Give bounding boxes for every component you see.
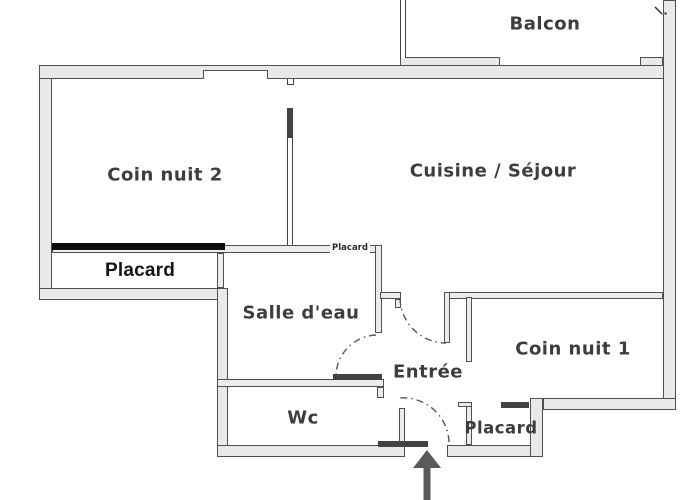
room-label-entree: Entrée xyxy=(393,362,463,383)
exterior-wall-top xyxy=(39,65,676,79)
coin-nuit-1-top-wall xyxy=(445,292,663,299)
placard-entree-door-bar xyxy=(501,402,529,408)
room-label-placard-mur: Placard xyxy=(330,243,370,253)
entrance-arrow-head xyxy=(413,450,441,468)
salle-deau-stub-step xyxy=(395,299,401,308)
divider-wall xyxy=(287,138,293,246)
salle-deau-door-bar xyxy=(333,374,382,380)
room-label-placard-nuit2: Placard xyxy=(105,260,175,282)
exterior-wall-bottom-coin1 xyxy=(543,398,676,410)
divider-wall-dark-end xyxy=(287,108,293,138)
room-label-coin-nuit-2: Coin nuit 2 xyxy=(107,165,223,186)
salle-deau-bottom-wall xyxy=(217,379,384,387)
room-label-coin-nuit-1: Coin nuit 1 xyxy=(515,339,631,360)
placard-entree-hook xyxy=(458,402,472,407)
balcony-parapet-right-segment xyxy=(640,57,663,66)
room-label-balcon: Balcon xyxy=(510,14,581,35)
wc-corner-step xyxy=(377,387,384,398)
floor-plan: Balcon Coin nuit 2 Cuisine / Séjour Plac… xyxy=(0,0,700,500)
exterior-wall-left xyxy=(39,65,52,300)
balcony-left-wall xyxy=(400,0,406,58)
exterior-wall-bottom-left xyxy=(39,288,226,300)
door-swing-arc-coin-nuit-1 xyxy=(400,298,446,343)
doorframe-notch xyxy=(287,79,294,85)
balcony-parapet-left-segment xyxy=(400,57,500,66)
room-label-cuisine-sejour: Cuisine / Séjour xyxy=(410,161,577,182)
salle-deau-right-wall xyxy=(375,245,382,333)
exterior-wall-left-step xyxy=(217,288,228,457)
door-swing-arc-entrance xyxy=(399,398,449,442)
entrance-arrow xyxy=(413,450,441,500)
salle-deau-wall-stub xyxy=(380,292,401,299)
exterior-wall-bottom-wc xyxy=(217,445,405,457)
coin-nuit-1-door-leaf xyxy=(444,292,450,343)
exterior-wall-right xyxy=(663,0,676,410)
closet-slider-black-bar xyxy=(52,243,225,250)
window-opening xyxy=(203,70,268,79)
closet-left-right-wall xyxy=(217,253,224,288)
room-label-placard-entree: Placard xyxy=(464,419,537,438)
entrance-door-bar xyxy=(378,441,428,447)
coin-nuit-1-left-wall xyxy=(466,297,472,362)
exterior-wall-bottom-placard xyxy=(447,445,543,457)
entrance-arrow-shaft xyxy=(424,466,431,500)
door-swing-arc-salle-deau xyxy=(336,335,376,374)
room-label-salle-deau: Salle d'eau xyxy=(243,303,360,324)
room-label-wc: Wc xyxy=(287,408,319,429)
